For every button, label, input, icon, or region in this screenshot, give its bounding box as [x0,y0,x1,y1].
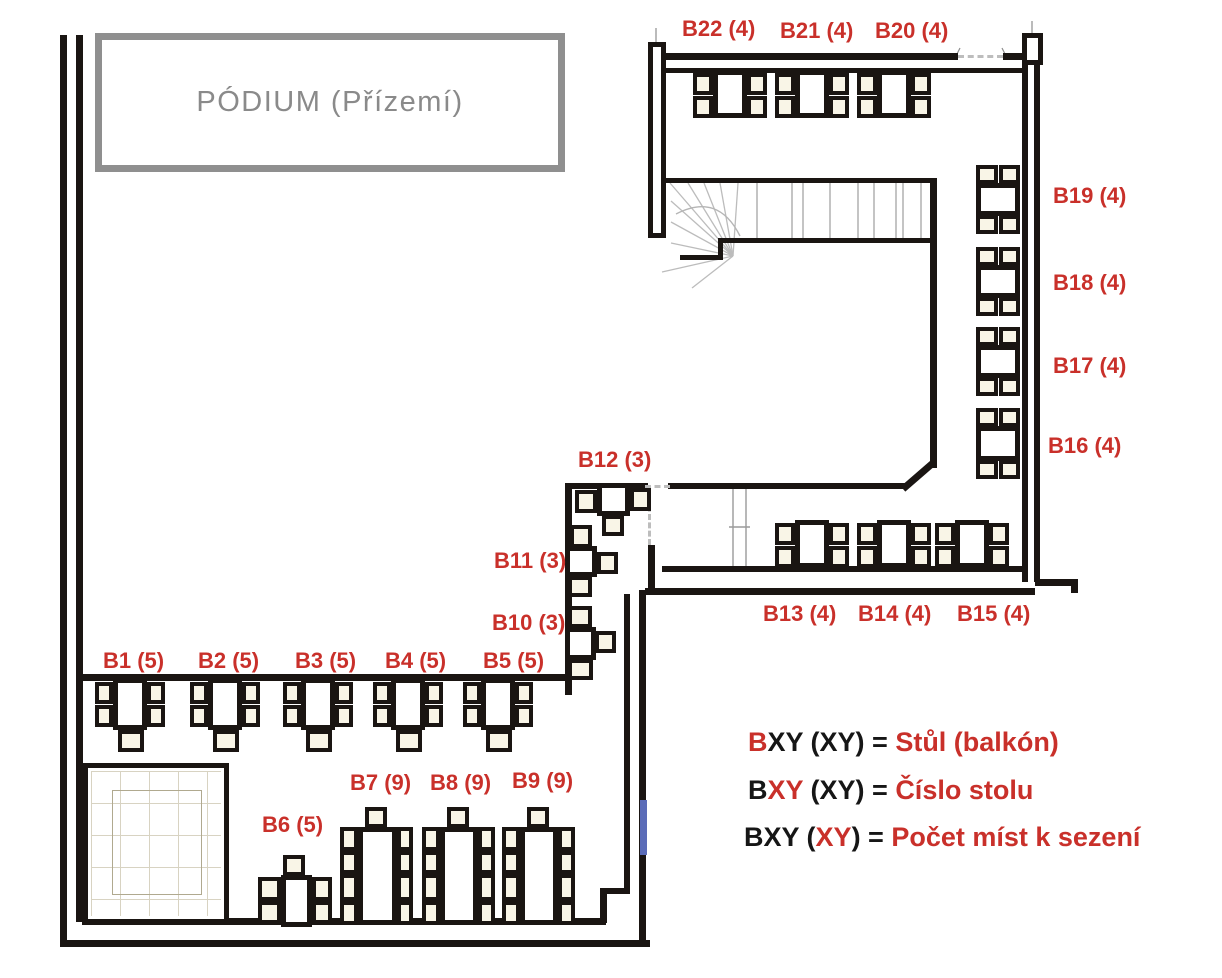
chair-of-B8 [422,901,440,925]
table-label-B21: B21 (4) [780,18,853,44]
chair-of-B8 [422,851,440,874]
chair-of-B8 [478,901,495,925]
chair-of-B21 [829,73,849,95]
table-B5 [481,678,515,730]
chair-of-B22 [747,73,767,95]
chair-of-B11 [570,525,592,548]
table-label-B11: B11 (3) [494,548,566,574]
table-label-B22: B22 (4) [682,16,755,42]
table-B22 [713,70,747,118]
chair-of-B19 [999,215,1020,234]
wall-stairs-bottom [718,238,937,243]
chair-of-B19 [976,215,998,234]
chair-of-B18 [976,297,998,316]
chair-of-B14 [911,546,931,568]
table-B11 [565,546,597,577]
chair-of-B20 [857,96,877,118]
chair-of-B9 [502,827,520,851]
wall-top-opening-dashed [958,55,1003,58]
podium-label: PÓDIUM (Přízemí) [196,86,463,119]
chair-of-B3 [306,730,332,752]
legend-segment: XY [816,822,852,852]
legend-row-3: BXY (XY) = Počet míst k sezení [744,822,1140,853]
table-B16 [976,426,1020,461]
chair-of-B9 [502,851,520,874]
chair-of-B19 [999,165,1020,184]
wall-top-right-segment [1003,53,1025,60]
table-B21 [795,70,829,118]
chair-of-B16 [999,460,1020,479]
table-B19 [976,183,1020,216]
chair-of-B7 [397,901,413,925]
table-label-B9: B9 (9) [512,768,573,794]
chair-of-B19 [976,165,998,184]
table-label-B18: B18 (4) [1053,270,1126,296]
table-label-B6: B6 (5) [262,812,323,838]
chair-of-B2 [190,705,208,727]
chair-of-B20 [857,73,877,95]
table-label-B10: B10 (3) [492,610,565,636]
chair-of-B1 [118,730,144,752]
table-label-B4: B4 (5) [385,648,446,674]
chair-of-B18 [999,297,1020,316]
legend-segment: B [748,727,768,757]
table-label-B1: B1 (5) [103,648,164,674]
chair-of-B16 [976,408,998,427]
chair-of-B6 [283,855,305,876]
chair-of-B20 [911,73,931,95]
chair-of-B9 [527,807,549,828]
table-label-B8: B8 (9) [430,770,491,796]
chair-of-B1 [147,682,165,704]
chair-of-B8 [478,874,495,901]
table-label-B2: B2 (5) [198,648,259,674]
chair-of-B6 [258,901,281,924]
chair-of-B13 [829,523,849,545]
chair-of-B1 [147,705,165,727]
chair-of-B1 [95,705,113,727]
chair-of-B17 [999,327,1020,346]
table-label-B3: B3 (5) [295,648,356,674]
wall-east-top-notch [1022,33,1043,65]
wall-wing-inner [624,594,630,892]
legend-segment: XY (XY) = [768,727,896,757]
wall-stairs-top [665,178,937,183]
chair-of-B12 [575,490,597,513]
wall-left-outer [60,35,67,947]
table-B9 [520,827,558,925]
chair-of-B3 [335,705,353,727]
chair-of-B3 [283,682,301,704]
chair-of-B18 [976,247,998,266]
chair-of-B2 [242,682,260,704]
table-B12 [597,483,630,516]
chair-of-B5 [515,705,533,727]
wall-top-left-segment [663,53,958,60]
chair-of-B13 [829,546,849,568]
table-B4 [391,678,425,730]
table-B17 [976,345,1020,378]
chair-of-B15 [989,546,1009,568]
chair-of-B7 [340,827,358,851]
legend-segment: ) = [852,822,892,852]
wall-tab-vertical [1071,579,1078,593]
chair-of-B4 [373,705,391,727]
chair-of-B7 [397,874,413,901]
wall-south-right [645,588,1035,595]
chair-of-B11 [568,576,592,597]
legend-row-1: BXY (XY) = Stůl (balkón) [748,727,1059,758]
chair-of-B7 [397,827,413,851]
table-B14 [877,520,911,568]
chair-of-B5 [486,730,512,752]
chair-of-B15 [989,523,1009,545]
chair-of-B5 [515,682,533,704]
wall-left-bar [648,42,666,238]
legend-segment: BXY ( [744,822,816,852]
wall-bottom-outer [60,940,650,947]
chair-of-B1 [95,682,113,704]
chair-of-B7 [365,807,387,828]
chair-of-B10 [595,631,616,653]
chair-of-B22 [747,96,767,118]
chair-of-B14 [857,546,877,568]
chair-of-B10 [568,659,593,680]
chair-of-B7 [340,874,358,901]
chair-of-B9 [502,874,520,901]
chair-of-B2 [213,730,239,752]
podium-box: PÓDIUM (Přízemí) [95,33,565,172]
wall-corridor-top-right [668,483,908,489]
chair-of-B7 [340,851,358,874]
chair-of-B5 [463,705,481,727]
legend-segment: (XY) = [803,775,895,805]
chair-of-B21 [829,96,849,118]
wall-wing-outer [639,590,646,947]
chair-of-B9 [558,874,575,901]
table-label-B7: B7 (9) [350,770,411,796]
chair-of-B17 [976,327,998,346]
table-label-B14: B14 (4) [858,601,931,627]
table-label-B19: B19 (4) [1053,183,1126,209]
chair-of-B16 [976,460,998,479]
chair-of-B22 [693,96,713,118]
chair-of-B9 [558,827,575,851]
table-B13 [795,520,829,568]
chair-of-B18 [999,247,1020,266]
chair-of-B3 [335,682,353,704]
wall-step-vertical [600,890,607,923]
table-B15 [955,520,989,568]
chair-of-B14 [911,523,931,545]
legend-segment: Počet míst k sezení [891,822,1140,852]
chair-of-B4 [425,682,443,704]
table-B10 [565,627,596,660]
table-B1 [113,678,147,730]
chair-of-B9 [502,901,520,925]
chair-of-B6 [258,877,281,901]
chair-of-B9 [558,851,575,874]
chair-of-B17 [999,377,1020,396]
table-B8 [440,827,478,925]
chair-of-B8 [478,851,495,874]
chair-of-B12 [602,515,624,536]
chair-of-B7 [340,901,358,925]
chair-of-B2 [242,705,260,727]
chair-of-B4 [425,705,443,727]
corridor-door-mark [729,489,750,566]
chair-of-B13 [775,546,795,568]
grid-inner-rect [112,790,202,895]
table-B2 [208,678,242,730]
chair-of-B3 [283,705,301,727]
table-label-B12: B12 (3) [578,447,651,473]
table-label-B20: B20 (4) [875,18,948,44]
table-B7 [358,827,397,925]
chair-of-B6 [312,901,332,924]
wall-left-inner [76,35,83,922]
table-label-B5: B5 (5) [483,648,544,674]
chair-of-B5 [463,682,481,704]
chair-of-B12 [630,488,651,511]
table-label-B16: B16 (4) [1048,433,1121,459]
table-label-B13: B13 (4) [763,601,836,627]
chair-of-B21 [775,96,795,118]
chair-of-B4 [396,730,422,752]
chair-of-B13 [775,523,795,545]
table-label-B17: B17 (4) [1053,353,1126,379]
chair-of-B7 [397,851,413,874]
legend-segment: B [748,775,768,805]
legend-segment: Stůl (balkón) [895,727,1059,757]
legend-segment: XY [768,775,804,805]
chair-of-B11 [597,552,618,574]
wall-east-outer [1034,60,1040,582]
chair-of-B8 [422,874,440,901]
legend-segment: Číslo stolu [895,775,1033,805]
chair-of-B10 [568,606,592,628]
floor-plan: PÓDIUM (Přízemí) BXY (XY) = Stůl (balkón… [0,0,1222,978]
chair-of-B8 [447,807,469,828]
table-B3 [301,678,335,730]
table-label-B15: B15 (4) [957,601,1030,627]
chair-of-B9 [558,901,575,925]
chair-of-B20 [911,96,931,118]
chair-of-B6 [312,877,332,901]
legend-row-2: BXY (XY) = Číslo stolu [748,775,1033,806]
chair-of-B16 [999,408,1020,427]
chair-of-B8 [478,827,495,851]
chair-of-B15 [935,546,955,568]
table-B18 [976,265,1020,298]
blue-wall-mark [640,800,647,855]
chair-of-B2 [190,682,208,704]
chair-of-B15 [935,523,955,545]
table-B20 [877,70,911,118]
chair-of-B8 [422,827,440,851]
chair-of-B17 [976,377,998,396]
chair-of-B22 [693,73,713,95]
chair-of-B21 [775,73,795,95]
wall-east-inner [1022,60,1028,582]
chair-of-B4 [373,682,391,704]
table-B6 [281,875,312,927]
wall-stairs-right [930,178,937,468]
wall-stairs-step-h [680,255,723,260]
chair-of-B14 [857,523,877,545]
winder-fan [662,183,738,288]
